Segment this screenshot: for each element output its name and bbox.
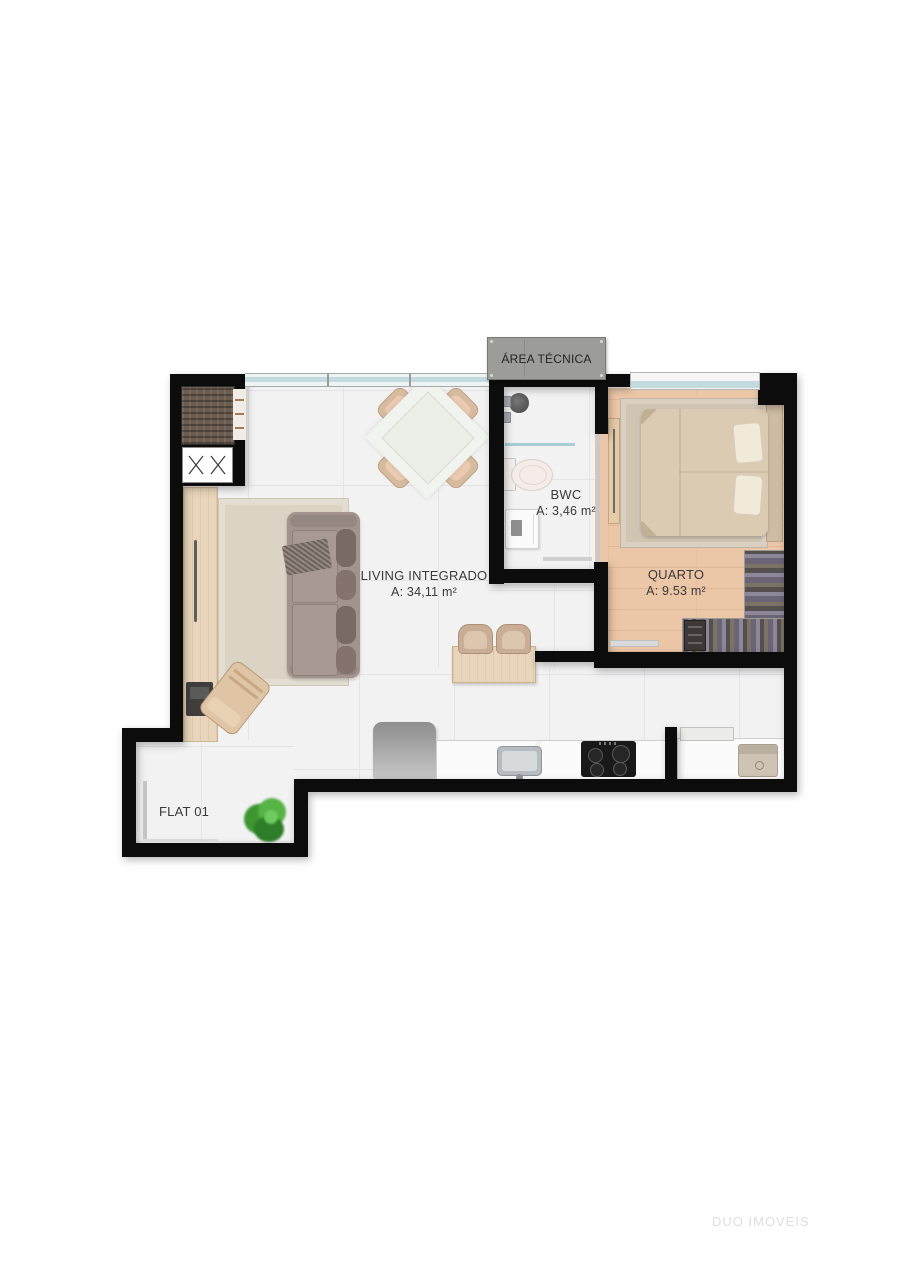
shower-glass (505, 443, 575, 446)
room-label-quarto: QUARTO A: 9.53 m² (616, 567, 736, 599)
room-label-area-tecnica: ÁREA TÉCNICA (488, 351, 605, 367)
dresser (684, 620, 706, 651)
watermark-logo: DUO IMOVEIS (712, 1214, 810, 1229)
bar-stool (496, 624, 531, 654)
sideboard-handle (194, 540, 197, 622)
cooktop (581, 741, 636, 777)
fridge (373, 722, 436, 779)
shower-head (509, 393, 529, 413)
living-window (245, 373, 489, 387)
laundry-shelf (680, 727, 734, 741)
wall-left (170, 485, 183, 728)
shower-valve (503, 412, 511, 423)
room-area: A: 9.53 m² (616, 583, 736, 599)
sofa-back-cushion (336, 606, 356, 644)
pillow (732, 422, 763, 464)
bedroom-window (630, 372, 760, 390)
wall-bedroom-bottom (594, 652, 797, 668)
room-area: A: 3,46 m² (518, 503, 614, 519)
sofa-back-cushion (336, 646, 356, 674)
room-label-bwc: BWC A: 3,46 m² (518, 487, 614, 519)
entry-door-leaf (143, 781, 147, 839)
wall-entry-step (294, 779, 308, 857)
wardrobe-shelf (233, 389, 246, 440)
window-mullion (409, 374, 411, 386)
floor-plan-page: ÁREA TÉCNICA LIVING INTEGRADO A: 34,11 m… (0, 0, 920, 1280)
vent-shaft (182, 447, 233, 483)
wall-bedroom-left-lower (594, 562, 608, 654)
window-mullion (327, 374, 329, 386)
room-area: A: 34,11 m² (334, 584, 514, 600)
bwc-door-threshold (543, 557, 592, 561)
area-tecnica-box: ÁREA TÉCNICA (487, 337, 606, 380)
sofa-back-cushion (336, 529, 356, 567)
room-name: QUARTO (616, 567, 736, 583)
wall-right (784, 373, 797, 792)
washing-machine (738, 744, 778, 777)
bar-stool (458, 624, 493, 654)
faucet (516, 774, 523, 781)
room-label-living: LIVING INTEGRADO A: 34,11 m² (334, 568, 514, 600)
shower-valve (503, 396, 511, 407)
plant (240, 796, 292, 846)
wall-left-lower (122, 740, 136, 855)
bedroom-sliding-door (610, 640, 659, 647)
wardrobe (181, 386, 235, 445)
room-name: LIVING INTEGRADO (334, 568, 514, 584)
clothes-rack-vertical (744, 550, 785, 622)
wall-bedroom-left-upper (595, 374, 608, 434)
kitchen-sink (497, 746, 542, 776)
headboard (766, 403, 783, 542)
pillow (733, 474, 764, 516)
double-bed (641, 409, 768, 536)
entry-threshold (143, 839, 218, 842)
unit-label: FLAT 01 (159, 804, 229, 820)
room-name: BWC (518, 487, 614, 503)
